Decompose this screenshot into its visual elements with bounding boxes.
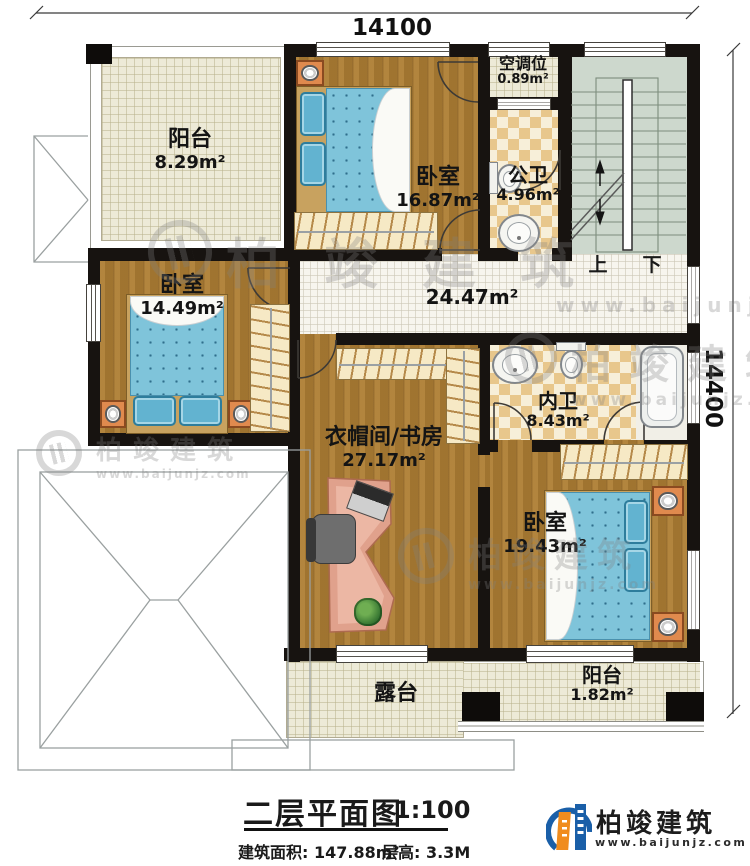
window	[584, 42, 666, 57]
room-label-study: 衣帽间/书房 27.17m²	[325, 426, 443, 471]
room-area: 8.43m²	[526, 412, 589, 430]
room-area: 1.82m²	[570, 686, 633, 704]
dimension-right: 14400	[700, 348, 726, 428]
wall-segment	[88, 433, 300, 446]
room-area: 19.43m²	[503, 537, 587, 557]
room-label-public-bath: 公卫 4.96m²	[496, 164, 559, 204]
wall-segment	[284, 648, 336, 661]
room-label-bedroom-right: 卧室 19.43m²	[503, 512, 587, 557]
wall-segment	[428, 648, 526, 661]
closet-rack	[336, 348, 450, 380]
room-label-bedroom-top: 卧室 16.87m²	[396, 166, 480, 211]
floor-height-label: 层高: 3.3M	[382, 839, 470, 863]
room-area: 14.49m²	[140, 299, 224, 319]
nightstand	[296, 60, 324, 86]
brand-website: www.baijunjz.com	[595, 836, 747, 849]
pillar	[86, 44, 112, 64]
window	[687, 266, 700, 324]
wall-segment	[336, 333, 687, 345]
room-name: 阳台	[154, 128, 225, 153]
room-label-terrace: 露台	[374, 682, 418, 707]
room-area: 27.17m²	[325, 451, 443, 471]
room-name: 衣帽间/书房	[325, 426, 443, 451]
pillow	[300, 92, 326, 136]
room-label-hallway: 24.47m²	[426, 286, 519, 308]
wall-segment	[558, 44, 572, 261]
room-label-balcony-bottom: 阳台 1.82m²	[570, 664, 633, 704]
window	[687, 550, 700, 630]
stair-down-label: 下	[642, 250, 661, 277]
room-label-bedroom-left: 卧室 14.49m²	[140, 274, 224, 319]
wardrobe	[250, 304, 290, 432]
wall-segment	[634, 648, 700, 661]
balcony-bottom-railing	[458, 721, 704, 732]
window	[86, 284, 101, 342]
sliding-door	[526, 645, 634, 663]
pillow	[624, 500, 648, 544]
pillow	[179, 396, 222, 426]
room-area: 24.47m²	[426, 286, 519, 308]
wall-segment	[478, 487, 490, 652]
room-area: 4.96m²	[496, 186, 559, 204]
room-label-ac-slot: 空调位 0.89m²	[497, 55, 548, 87]
wall-segment	[88, 248, 100, 446]
room-label-balcony-top: 阳台 8.29m²	[154, 128, 225, 173]
pillow	[133, 396, 176, 426]
room-area: 16.87m²	[396, 191, 480, 211]
sliding-door	[336, 645, 428, 663]
window	[687, 352, 700, 424]
floor-plan-canvas: 阳台 8.29m² 卧室 16.87m² 空调位 0.89m² 公卫 4.96m…	[0, 0, 750, 866]
pillow	[624, 548, 648, 592]
plan-scale: 1:100	[394, 796, 470, 824]
pillow	[300, 142, 326, 186]
room-name: 卧室	[503, 512, 587, 537]
wall-segment	[88, 248, 298, 261]
room-name: 卧室	[396, 166, 480, 191]
wardrobe	[560, 444, 688, 480]
closet-rack	[446, 348, 480, 444]
sink	[492, 346, 538, 384]
wall-segment	[552, 248, 572, 261]
wall-segment	[478, 44, 490, 261]
office-chair	[312, 514, 356, 564]
brand-logo-icon	[546, 796, 592, 862]
room-area: 8.29m²	[154, 153, 225, 173]
room-name: 露台	[374, 682, 418, 707]
office-chair-back	[306, 518, 316, 562]
toilet	[560, 350, 583, 379]
nightstand	[100, 400, 126, 428]
room-name: 卧室	[140, 274, 224, 299]
room-area: 0.89m²	[497, 73, 548, 88]
bathtub	[640, 346, 684, 428]
wall-segment	[478, 440, 498, 452]
building-area-label: 建筑面积: 147.88m²	[238, 839, 399, 863]
room-name: 阳台	[570, 664, 633, 686]
stair-up-label: 上	[588, 250, 607, 277]
nightstand	[652, 612, 684, 642]
plan-title: 二层平面图	[243, 789, 403, 833]
brand-name: 柏竣建筑	[596, 803, 716, 840]
sink	[498, 214, 540, 252]
window	[497, 98, 551, 110]
room-name: 空调位	[497, 55, 548, 73]
title-underline	[244, 828, 448, 831]
stairwell-floor	[570, 56, 687, 254]
wardrobe	[294, 212, 438, 250]
watermark-logo-icon	[31, 425, 87, 481]
nightstand	[652, 486, 684, 516]
watermark-url: www.baijunjz.com	[96, 467, 251, 481]
room-name: 内卫	[526, 390, 589, 412]
room-name: 公卫	[496, 164, 559, 186]
potted-plant	[354, 598, 382, 626]
window	[316, 42, 450, 57]
room-label-ensuite-bath: 内卫 8.43m²	[526, 390, 589, 430]
dimension-top: 14100	[352, 15, 432, 41]
